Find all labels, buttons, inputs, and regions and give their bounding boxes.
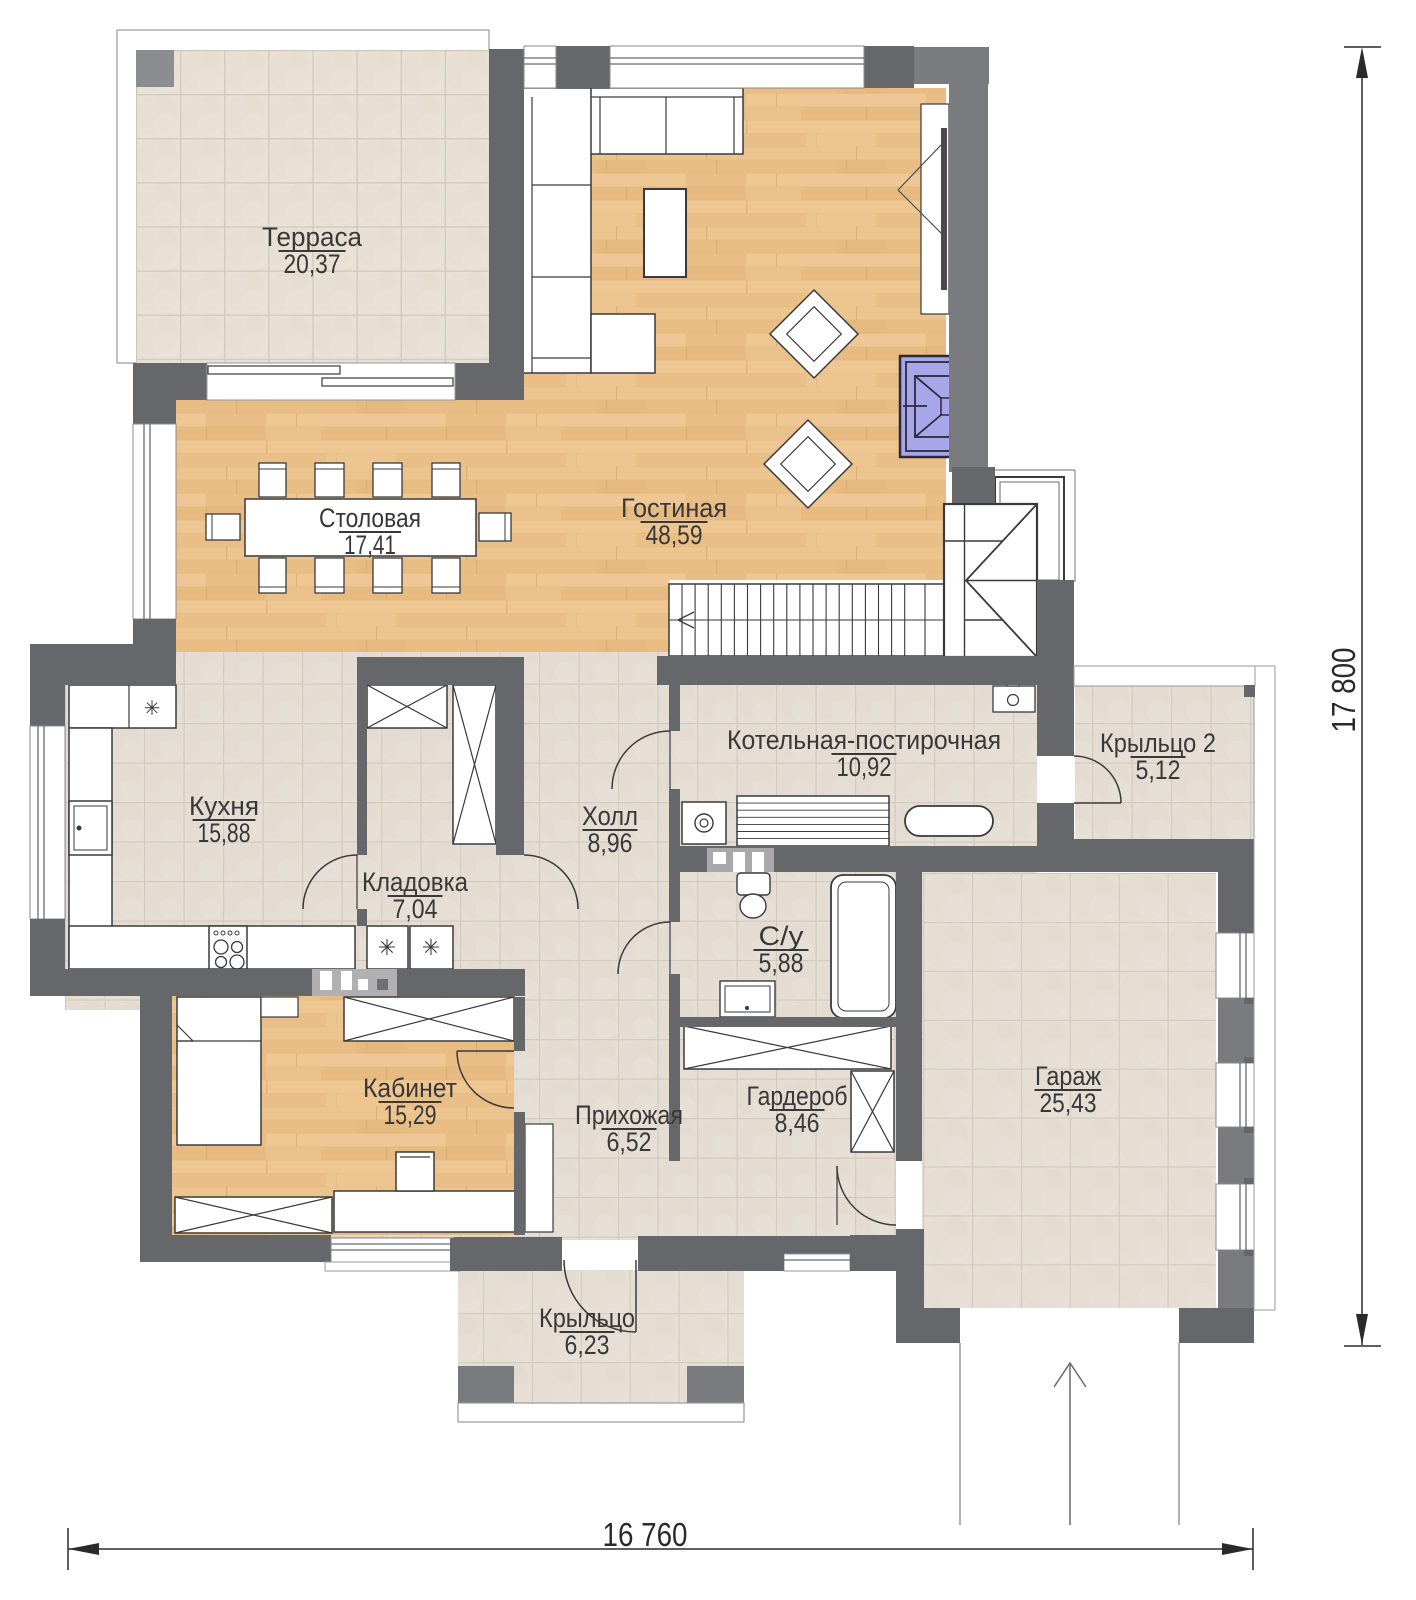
svg-text:Холл: Холл [582, 801, 638, 831]
svg-text:15,29: 15,29 [384, 1100, 437, 1130]
svg-text:17,41: 17,41 [344, 530, 396, 560]
svg-text:Столовая: Столовая [319, 503, 421, 533]
svg-text:Терраса: Терраса [262, 222, 362, 252]
svg-text:✳: ✳ [378, 935, 396, 960]
svg-text:16 760: 16 760 [603, 1517, 688, 1554]
svg-text:Гостиная: Гостиная [621, 493, 727, 523]
svg-text:С/у: С/у [759, 921, 805, 951]
svg-text:6,23: 6,23 [565, 1330, 610, 1360]
svg-text:Кабинет: Кабинет [363, 1073, 457, 1103]
svg-text:8,46: 8,46 [775, 1108, 820, 1138]
svg-text:Крыльцо 2: Крыльцо 2 [1100, 728, 1216, 758]
svg-text:Котельная-постирочная: Котельная-постирочная [727, 725, 1001, 755]
svg-text:Крыльцо: Крыльцо [539, 1303, 635, 1333]
svg-text:Кладовка: Кладовка [362, 867, 468, 897]
svg-text:15,88: 15,88 [198, 818, 251, 848]
svg-text:48,59: 48,59 [646, 520, 703, 550]
svg-text:Прихожая: Прихожая [575, 1100, 683, 1130]
svg-text:8,96: 8,96 [588, 828, 633, 858]
svg-text:17 800: 17 800 [1326, 648, 1363, 733]
svg-text:25,43: 25,43 [1040, 1088, 1097, 1118]
svg-text:Кухня: Кухня [189, 791, 259, 821]
svg-text:5,88: 5,88 [759, 948, 804, 978]
svg-text:10,92: 10,92 [837, 752, 892, 782]
svg-text:7,04: 7,04 [393, 894, 438, 924]
svg-text:✳: ✳ [422, 935, 440, 960]
svg-text:20,37: 20,37 [284, 249, 341, 279]
svg-text:6,52: 6,52 [607, 1127, 652, 1157]
svg-text:5,12: 5,12 [1136, 755, 1181, 785]
svg-text:Гардероб: Гардероб [747, 1081, 848, 1111]
svg-text:Гараж: Гараж [1035, 1061, 1101, 1091]
svg-text:✳: ✳ [144, 698, 161, 720]
